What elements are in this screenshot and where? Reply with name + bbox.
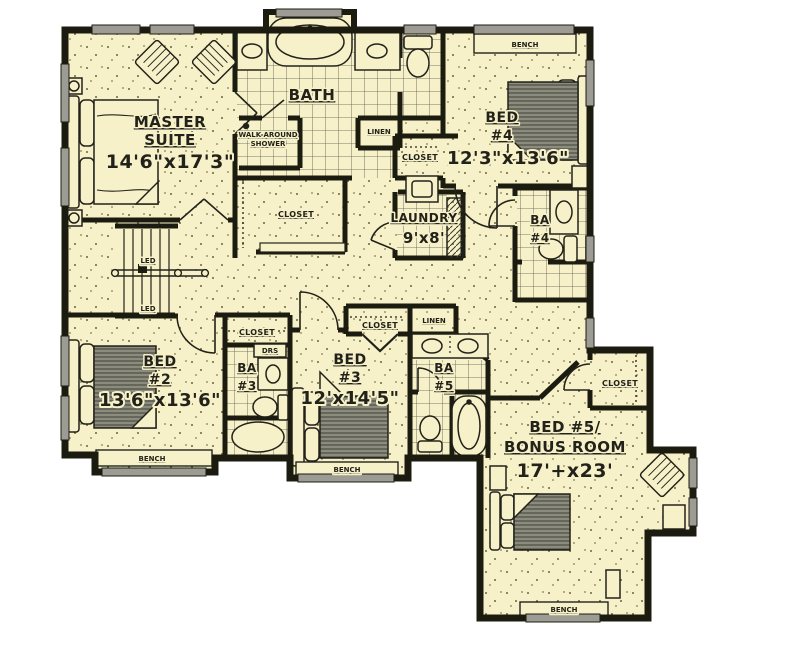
- bath-linen-label: LINEN: [367, 128, 391, 136]
- laundry-sink: [406, 176, 438, 202]
- floor-plan: MASTER SUITE 14'6"x17'3" BATH WALK-AROUN…: [0, 0, 800, 648]
- hall-linen-label: LINEN: [422, 317, 446, 325]
- bath-label: BATH: [289, 86, 336, 104]
- bed3-label: BED: [333, 352, 366, 368]
- stair-led-label: LED: [140, 257, 155, 265]
- bed4-dims: 12'3"x13'6": [447, 148, 569, 169]
- window: [61, 148, 69, 206]
- ba3-vanity: [258, 358, 288, 390]
- ba3-drawers-label: DRS: [262, 347, 278, 355]
- window: [61, 64, 69, 122]
- stair-led-label: LED: [140, 305, 155, 313]
- window: [298, 474, 394, 482]
- window: [276, 9, 342, 17]
- bed3-closet-label: CLOSET: [362, 321, 398, 330]
- master-closet-label: CLOSET: [278, 210, 314, 219]
- walk-around-shower-label: WALK-AROUND: [238, 131, 297, 139]
- bed2-label: BED: [143, 354, 176, 370]
- window: [150, 25, 194, 34]
- bed3-label2: #3: [339, 370, 361, 386]
- laundry-dims: 9'x8': [403, 229, 445, 247]
- ba5-toilet: [418, 416, 442, 452]
- bath-vanity-right: [355, 32, 400, 70]
- master-suite-dims: 14'6"x17'3": [106, 151, 235, 173]
- ba5-tub: [452, 396, 486, 456]
- window: [586, 60, 594, 106]
- ba5-vanity: [412, 334, 488, 358]
- floor-plan-page: MASTER SUITE 14'6"x17'3" BATH WALK-AROUN…: [0, 0, 800, 648]
- bath-vanity-left: [237, 32, 267, 70]
- shower-head-icon: [244, 124, 249, 129]
- window: [586, 318, 594, 348]
- bed5-bonus-dims: 17'+x23': [517, 460, 614, 482]
- ba5-label2: #5: [434, 379, 453, 393]
- bench-label: BENCH: [551, 606, 578, 614]
- bed2-dims: 13'6"x13'6": [99, 390, 221, 411]
- window: [92, 25, 140, 34]
- ba4-vanity: [550, 190, 578, 234]
- side-table: [606, 570, 620, 598]
- bed5-bonus-label2: BONUS ROOM: [504, 438, 626, 456]
- master-suite-label: MASTER: [134, 113, 206, 131]
- ba5-label: BA: [434, 361, 454, 375]
- master-suite-label2: SUITE: [144, 131, 196, 149]
- bed4-label: BED: [485, 110, 518, 126]
- window: [586, 236, 594, 262]
- bed4-label2: #4: [491, 128, 513, 144]
- laundry-label: LAUNDRY: [390, 211, 457, 225]
- bench-label: BENCH: [334, 466, 361, 474]
- side-table: [663, 505, 685, 529]
- window: [689, 498, 697, 526]
- ba3-label2: #3: [237, 379, 256, 393]
- window: [102, 468, 206, 476]
- bed3-dims: 12'x14'5": [300, 388, 399, 409]
- ba4-label2: #4: [530, 231, 549, 245]
- window: [404, 25, 436, 34]
- window: [474, 25, 574, 34]
- walk-around-shower-label2: SHOWER: [251, 140, 286, 148]
- toilet-icon: [404, 36, 432, 77]
- window: [526, 614, 600, 622]
- washer-dryer: [447, 198, 463, 258]
- ba4-label: BA: [530, 213, 550, 227]
- bed2-label2: #2: [149, 372, 171, 388]
- window: [689, 458, 697, 488]
- bench-label: BENCH: [512, 41, 539, 49]
- window: [61, 396, 69, 440]
- bed4-closet-label: CLOSET: [402, 153, 438, 162]
- bench-label: BENCH: [139, 455, 166, 463]
- ba3-tub: [232, 422, 284, 452]
- ba3-label: BA: [237, 361, 257, 375]
- window: [61, 336, 69, 386]
- bonus-closet-label: CLOSET: [602, 379, 638, 388]
- bed2-closet-label: CLOSET: [239, 328, 275, 337]
- bed5-bonus-label: BED #5/: [529, 418, 600, 436]
- bathtub-icon: [268, 18, 352, 66]
